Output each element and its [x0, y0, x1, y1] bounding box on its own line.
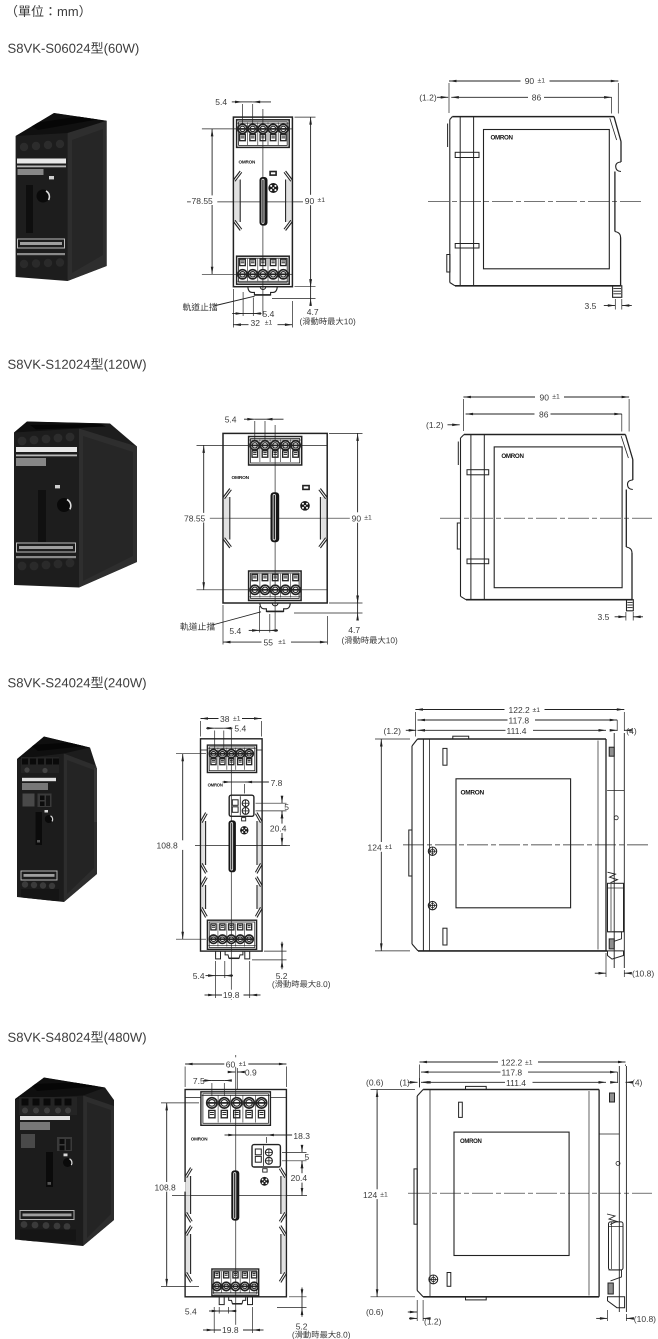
svg-text:±1: ±1 [233, 716, 241, 723]
svg-text:(4): (4) [626, 726, 637, 736]
svg-text:(4): (4) [632, 1077, 643, 1087]
svg-text:3.5: 3.5 [585, 301, 597, 311]
svg-text:86: 86 [532, 93, 542, 103]
svg-text:(1.2): (1.2) [419, 93, 437, 103]
svg-text:90: 90 [540, 392, 550, 402]
svg-text:108.8: 108.8 [155, 1182, 177, 1192]
svg-text:±1: ±1 [380, 1192, 388, 1199]
svg-text:(0.6): (0.6) [366, 1077, 384, 1087]
svg-text:(1.2): (1.2) [424, 1316, 442, 1326]
svg-text:20.4: 20.4 [270, 823, 287, 833]
svg-text:±1: ±1 [278, 639, 286, 646]
svg-text:(10.8): (10.8) [634, 1314, 656, 1324]
svg-text:±1: ±1 [265, 319, 273, 326]
svg-text:5.4: 5.4 [215, 97, 227, 107]
svg-text:(10.8): (10.8) [632, 969, 654, 979]
svg-text:86: 86 [539, 409, 549, 419]
svg-text:32: 32 [251, 318, 261, 328]
svg-text:90: 90 [305, 196, 315, 206]
svg-text:78.55: 78.55 [192, 196, 214, 206]
svg-text:108.8: 108.8 [157, 841, 179, 851]
svg-text:122.2: 122.2 [509, 705, 531, 715]
svg-text:122.2: 122.2 [501, 1058, 523, 1068]
svg-text:18.3: 18.3 [293, 1131, 310, 1141]
svg-text:OMRON: OMRON [461, 789, 485, 796]
svg-text:5: 5 [284, 802, 289, 812]
svg-text:5.4: 5.4 [185, 1306, 197, 1316]
svg-text:±1: ±1 [318, 197, 326, 204]
svg-text:OMRON: OMRON [239, 160, 256, 165]
svg-text:4.7: 4.7 [307, 307, 319, 317]
svg-text:3.5: 3.5 [598, 612, 610, 622]
svg-text:20.4: 20.4 [291, 1173, 308, 1183]
svg-text:±1: ±1 [385, 844, 393, 851]
svg-text:5.2: 5.2 [276, 971, 288, 981]
svg-text:90: 90 [525, 76, 535, 86]
svg-text:124: 124 [368, 843, 382, 853]
svg-text:90: 90 [352, 513, 362, 523]
svg-text:(1): (1) [400, 1077, 411, 1087]
svg-text:117.8: 117.8 [502, 1068, 523, 1078]
svg-text:OMRON: OMRON [208, 782, 223, 787]
svg-text:OMRON: OMRON [460, 1139, 482, 1145]
svg-text:5.4: 5.4 [229, 626, 241, 636]
svg-text:OMRON: OMRON [491, 134, 514, 141]
svg-text:19.8: 19.8 [223, 990, 240, 1000]
svg-text:7.8: 7.8 [271, 778, 283, 788]
svg-text:5.4: 5.4 [225, 415, 237, 425]
svg-text:±1: ±1 [533, 707, 541, 714]
svg-text:(0.6): (0.6) [366, 1307, 384, 1317]
svg-text:5.4: 5.4 [234, 723, 246, 733]
svg-text:117.8: 117.8 [509, 716, 530, 726]
svg-text:±1: ±1 [364, 515, 372, 522]
svg-text:78.55: 78.55 [184, 513, 206, 523]
svg-text:7.5: 7.5 [193, 1076, 205, 1086]
svg-text:(1.2): (1.2) [384, 726, 402, 736]
svg-text:38: 38 [220, 714, 230, 724]
svg-text:5.4: 5.4 [193, 971, 205, 981]
svg-text:19.8: 19.8 [222, 1325, 239, 1335]
svg-text:111.4: 111.4 [506, 1078, 526, 1088]
svg-text:4.7: 4.7 [348, 625, 360, 635]
svg-text:124: 124 [363, 1190, 377, 1200]
svg-text:111.4: 111.4 [507, 726, 527, 736]
svg-text:5: 5 [305, 1152, 310, 1162]
svg-text:55: 55 [264, 637, 274, 647]
svg-text:±1: ±1 [525, 1059, 533, 1066]
svg-text:(1.2): (1.2) [426, 420, 444, 430]
svg-text:OMRON: OMRON [232, 475, 250, 481]
svg-text:±1: ±1 [552, 394, 560, 401]
svg-text:60: 60 [226, 1060, 236, 1070]
svg-text:OMRON: OMRON [501, 453, 524, 460]
svg-text:±1: ±1 [538, 78, 546, 85]
svg-text:0.9: 0.9 [245, 1068, 257, 1078]
svg-text:5.2: 5.2 [296, 1321, 308, 1331]
svg-text:OMRON: OMRON [191, 1137, 208, 1142]
svg-text:5.4: 5.4 [263, 309, 275, 319]
